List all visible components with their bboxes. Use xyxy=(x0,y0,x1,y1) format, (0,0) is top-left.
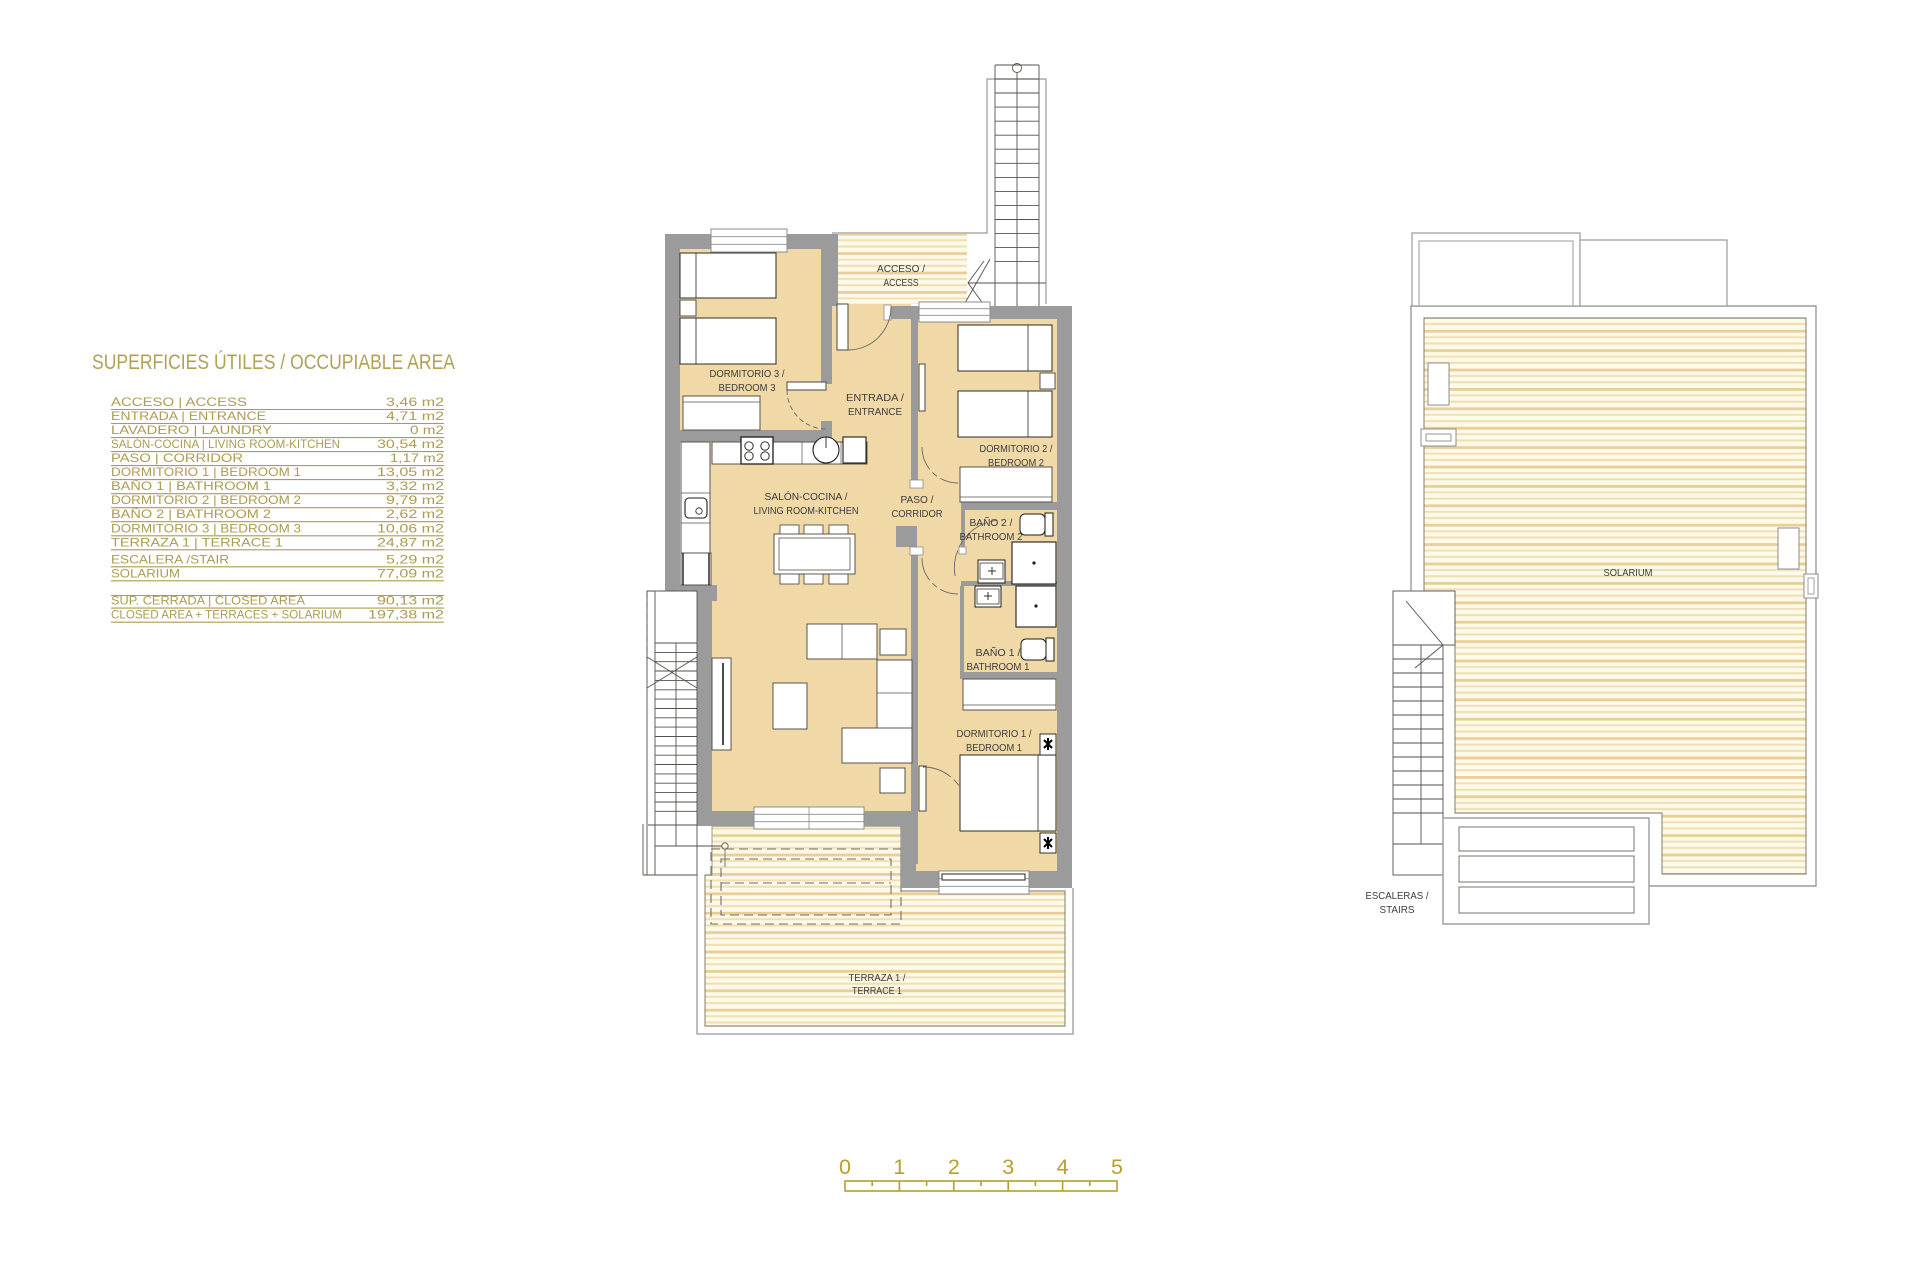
svg-text:1: 1 xyxy=(893,1155,905,1179)
svg-text:CORRIDOR: CORRIDOR xyxy=(892,508,943,520)
svg-text:4,71 m2: 4,71 m2 xyxy=(386,409,444,423)
svg-text:5: 5 xyxy=(1111,1155,1123,1179)
svg-text:3,46 m2: 3,46 m2 xyxy=(386,395,444,409)
svg-text:3,32 m2: 3,32 m2 xyxy=(386,479,444,493)
svg-text:SALÓN-COCINA /: SALÓN-COCINA / xyxy=(765,490,848,503)
svg-text:3: 3 xyxy=(1002,1155,1014,1179)
svg-text:2: 2 xyxy=(948,1155,960,1179)
svg-text:2,62 m2: 2,62 m2 xyxy=(386,507,444,521)
svg-text:0: 0 xyxy=(839,1155,851,1179)
svg-text:77,09 m2: 77,09 m2 xyxy=(377,566,444,580)
svg-text:BEDROOM 3: BEDROOM 3 xyxy=(719,382,776,394)
svg-text:PASO /: PASO / xyxy=(901,494,934,506)
svg-text:0 m2: 0 m2 xyxy=(410,423,444,437)
svg-text:ACCESS: ACCESS xyxy=(884,277,919,289)
svg-text:STAIRS: STAIRS xyxy=(1380,904,1415,916)
svg-text:10,06 m2: 10,06 m2 xyxy=(377,521,444,535)
svg-text:9,79 m2: 9,79 m2 xyxy=(386,493,444,507)
svg-text:30,54 m2: 30,54 m2 xyxy=(377,437,444,451)
svg-text:ENTRANCE: ENTRANCE xyxy=(848,406,902,418)
svg-text:ACCESO /: ACCESO / xyxy=(877,263,925,275)
svg-text:5,29 m2: 5,29 m2 xyxy=(386,552,444,566)
svg-text:4: 4 xyxy=(1057,1155,1069,1179)
svg-text:BEDROOM 2: BEDROOM 2 xyxy=(988,457,1044,469)
svg-text:TERRAZA 1 /: TERRAZA 1 / xyxy=(849,972,906,984)
svg-text:ESCALERAS /: ESCALERAS / xyxy=(1366,890,1429,902)
svg-text:1,17 m2: 1,17 m2 xyxy=(390,451,444,465)
svg-text:TERRAZA 1 | TERRACE 1: TERRAZA 1 | TERRACE 1 xyxy=(111,535,283,549)
svg-text:ESCALERA /STAIR: ESCALERA /STAIR xyxy=(111,552,229,566)
svg-text:TERRACE 1: TERRACE 1 xyxy=(852,985,902,997)
svg-text:PASO | CORRIDOR: PASO | CORRIDOR xyxy=(111,451,243,465)
svg-text:ENTRADA /: ENTRADA / xyxy=(846,392,904,404)
svg-text:DORMITORIO 2 | BEDROOM 2: DORMITORIO 2 | BEDROOM 2 xyxy=(111,493,301,507)
svg-text:BAÑO 1 | BATHROOM 1: BAÑO 1 | BATHROOM 1 xyxy=(111,479,271,493)
svg-text:SOLARIUM: SOLARIUM xyxy=(1604,567,1653,579)
svg-text:BAÑO 2 | BATHROOM 2: BAÑO 2 | BATHROOM 2 xyxy=(111,507,271,521)
svg-text:DORMITORIO 1 | BEDROOM 1: DORMITORIO 1 | BEDROOM 1 xyxy=(111,465,301,479)
svg-text:90,13 m2: 90,13 m2 xyxy=(377,594,444,608)
svg-text:SALÓN-COCINA | LIVING ROOM-KIT: SALÓN-COCINA | LIVING ROOM-KITCHEN xyxy=(111,436,340,451)
svg-text:SUP. CERRADA | CLOSED AREA: SUP. CERRADA | CLOSED AREA xyxy=(111,594,305,608)
svg-text:ACCESO | ACCESS: ACCESO | ACCESS xyxy=(111,395,247,409)
svg-text:24,87 m2: 24,87 m2 xyxy=(377,535,444,549)
svg-text:ENTRADA | ENTRANCE: ENTRADA | ENTRANCE xyxy=(111,409,266,423)
svg-text:BATHROOM 1: BATHROOM 1 xyxy=(967,661,1030,673)
svg-text:BEDROOM 1: BEDROOM 1 xyxy=(966,742,1022,754)
svg-text:LIVING ROOM-KITCHEN: LIVING ROOM-KITCHEN xyxy=(754,505,859,517)
svg-text:LAVADERO | LAUNDRY: LAVADERO | LAUNDRY xyxy=(111,423,272,437)
svg-text:DORMITORIO 3 | BEDROOM 3: DORMITORIO 3 | BEDROOM 3 xyxy=(111,521,301,535)
svg-text:BAÑO 2 /: BAÑO 2 / xyxy=(970,516,1013,529)
svg-text:SOLARIUM: SOLARIUM xyxy=(111,566,180,580)
svg-text:13,05 m2: 13,05 m2 xyxy=(377,465,444,479)
svg-text:DORMITORIO 3 /: DORMITORIO 3 / xyxy=(710,368,785,380)
svg-text:197,38 m2: 197,38 m2 xyxy=(368,608,444,622)
svg-text:CLOSED AREA + TERRACES + SOLAR: CLOSED AREA + TERRACES + SOLARIUM xyxy=(111,608,342,622)
svg-text:SUPERFICIES ÚTILES / OCCUPIABL: SUPERFICIES ÚTILES / OCCUPIABLE AREA xyxy=(92,351,455,374)
svg-text:DORMITORIO 2 /: DORMITORIO 2 / xyxy=(980,443,1053,455)
svg-text:DORMITORIO 1 /: DORMITORIO 1 / xyxy=(957,728,1032,740)
svg-text:BATHROOM 2: BATHROOM 2 xyxy=(960,531,1023,543)
svg-text:BAÑO 1 /: BAÑO 1 / xyxy=(976,646,1021,659)
